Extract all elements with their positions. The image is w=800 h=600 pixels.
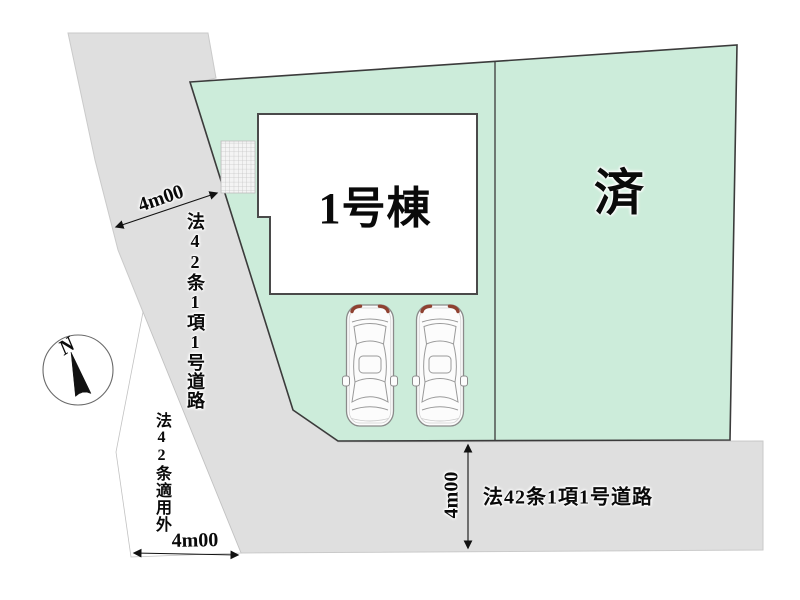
site-plan-canvas: 1号棟 済 法42条1項1号道路 法42条適用外 法42条1項1号道路 4m00… bbox=[0, 0, 800, 600]
excluded-area-label: 法42条適用外 bbox=[153, 412, 169, 533]
tile-grid-icon bbox=[221, 141, 255, 193]
dim-south-left-width-label: 4m00 bbox=[171, 529, 218, 553]
sold-lot-label: 済 bbox=[594, 153, 644, 225]
building-label: 1号棟 bbox=[319, 172, 432, 236]
dim-south-road-width-label: 4m00 bbox=[441, 472, 464, 519]
car-icon bbox=[343, 305, 398, 426]
car-icon bbox=[413, 305, 468, 426]
south-road-label: 法42条1項1号道路 bbox=[483, 481, 653, 510]
north-compass-icon bbox=[43, 335, 113, 405]
site-plan-drawing bbox=[0, 0, 800, 600]
west-road-label: 法42条1項1号道路 bbox=[186, 212, 204, 410]
